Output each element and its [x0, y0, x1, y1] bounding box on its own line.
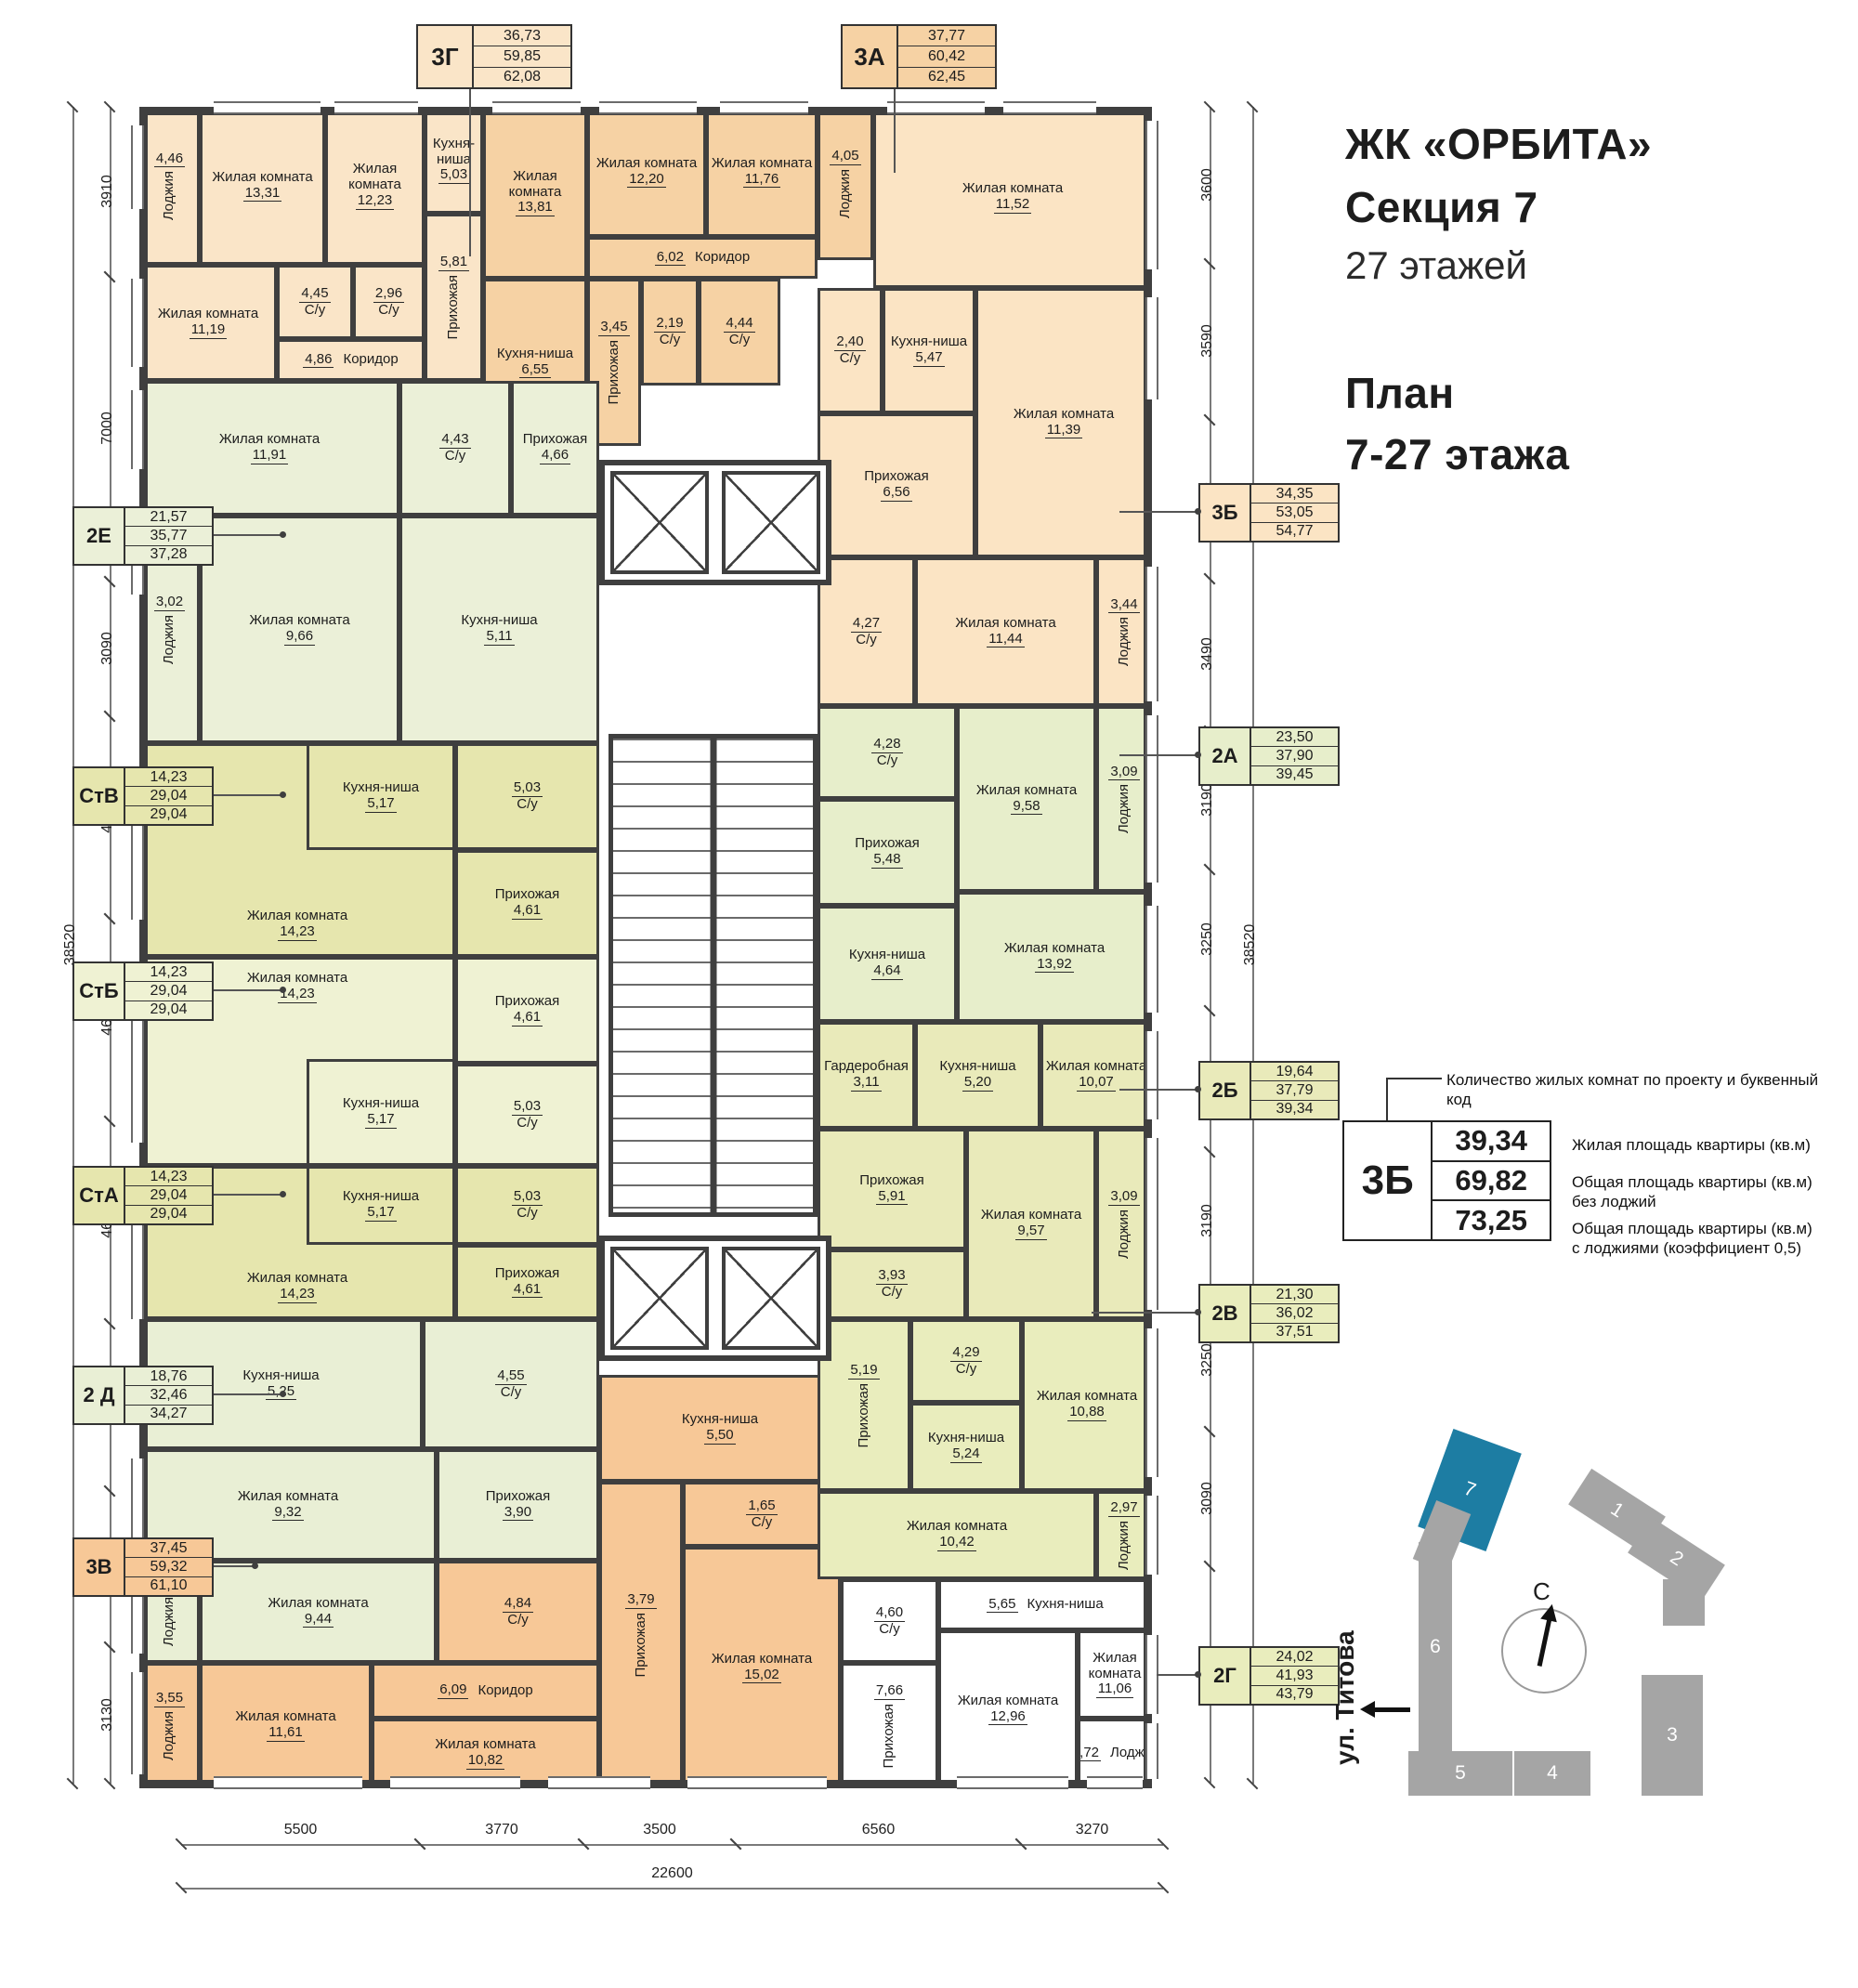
leader-dot [1195, 508, 1201, 515]
room-area: 3,09Лоджия [1096, 706, 1152, 892]
room-area: 11,19 [190, 322, 227, 339]
room-area: 4,05Лоджия [818, 107, 873, 260]
room-area: Кухня-ниша5,17 [307, 1059, 455, 1166]
window-segment [214, 1776, 362, 1789]
room-area: Жилая комната9,66 [200, 516, 399, 743]
apartment-box-СтБ: СтБ14,2329,0429,04 [72, 961, 214, 1021]
apartment-code: 2 Д [74, 1367, 125, 1423]
leader-line [1157, 1674, 1198, 1676]
apartment-area-value: 29,04 [125, 787, 212, 805]
room-area: 1,65 [746, 1498, 777, 1515]
room-name: С/у [507, 1613, 529, 1628]
room-area: 3,72 [1078, 1746, 1101, 1762]
room-area: 10,82 [466, 1753, 505, 1770]
window-segment [720, 101, 808, 114]
window-segment [687, 1776, 827, 1789]
room-area: Прихожая4,61 [455, 850, 599, 957]
room-name: Жилая комната [435, 1737, 535, 1753]
apartment-area-value: 37,79 [1251, 1081, 1338, 1100]
room-area: 14,23 [278, 924, 317, 941]
apartment-area-value: 59,32 [125, 1558, 212, 1576]
room-area: 6,09 [438, 1682, 468, 1699]
dim-label: 3190 [1199, 1174, 1216, 1267]
legend-living-area: 39,34 [1433, 1122, 1550, 1162]
apartment-box-2Б: 2Б19,6437,7939,34 [1198, 1061, 1340, 1120]
apartment-area-value: 62,45 [898, 68, 995, 87]
room-bathroom: 5,03С/у [455, 1166, 599, 1245]
site-building-3: 3 [1642, 1675, 1703, 1796]
room-bathroom: 4,60С/у [841, 1579, 938, 1663]
apartment-area-value: 37,90 [1251, 747, 1338, 765]
room-area: 4,86 [303, 352, 334, 369]
room-name: Жилая комната [212, 170, 312, 186]
room-name: Кухня-ниша [682, 1412, 758, 1428]
leader-line [1092, 1312, 1198, 1314]
plan-floors: 7-27 этажа [1345, 429, 1828, 479]
room-area: Кухня-ниша5,50 [599, 1375, 841, 1482]
room-area: 11,76 [743, 172, 780, 189]
room-name: Прихожая [495, 887, 560, 903]
leader-dot [280, 987, 286, 993]
room-area: 4,61 [512, 903, 543, 920]
window-segment [1145, 1328, 1158, 1477]
apartment-box-2В: 2В21,3036,0237,51 [1198, 1284, 1340, 1343]
room-bathroom: 4,84С/у [437, 1561, 599, 1663]
room-area: 4,46Лоджия [139, 107, 200, 265]
room-area: 5,03 [512, 1189, 543, 1206]
room-name: Жилая комната [219, 432, 320, 448]
room-name: Прихожая [495, 1266, 560, 1282]
room-area: 5,65Кухня-ниша [938, 1579, 1152, 1630]
window-segment [492, 101, 581, 114]
room-area: Кухня-ниша5,47 [883, 288, 975, 413]
room-area: 5,20 [962, 1075, 993, 1092]
room-area: 5,47 [913, 350, 944, 367]
room-area: Жилая комната11,61 [200, 1663, 372, 1788]
room-area: 4,66 [540, 448, 570, 464]
apartment-area-value: 19,64 [1251, 1063, 1338, 1081]
window-segment [1145, 715, 1158, 883]
apartment-code: СтБ [74, 963, 125, 1019]
window-segment [1087, 1776, 1143, 1789]
room-area: 5,03 [512, 780, 543, 797]
leader-line [214, 794, 283, 796]
room-area: Кухня-ниша5,17 [307, 1166, 455, 1245]
room-name: Лоджия [1117, 617, 1132, 666]
room-area: 4,05 [830, 149, 860, 165]
room-bathroom: 2,19С/у [641, 279, 699, 386]
window-segment [548, 1776, 650, 1789]
elevator-shaft-icon [722, 1247, 820, 1350]
room-area: 2,97 [1108, 1500, 1139, 1517]
window-segment [1145, 1496, 1158, 1575]
room-area: 5,19 [848, 1363, 879, 1380]
room-name: Кухня-ниша [461, 613, 537, 629]
room-area: Жилая комната12,96 [938, 1630, 1078, 1788]
room-area: Гардеробная3,11 [818, 1022, 915, 1129]
room-area: 5,91 [876, 1189, 907, 1206]
elevator-shaft-icon [722, 471, 820, 574]
room-area: 10,42 [937, 1535, 976, 1551]
room-area: Жилая комната9,44 [200, 1561, 437, 1663]
room-area: 4,45 [299, 286, 330, 303]
room-name: С/у [752, 1515, 773, 1531]
room-name: Коридор [343, 352, 398, 368]
room-area: 11,44 [987, 632, 1024, 648]
room-area: 6,56 [881, 485, 911, 502]
apartment-area-value: 35,77 [125, 527, 212, 545]
apartment-code: 3А [843, 26, 898, 87]
window-segment [599, 101, 697, 114]
room-area: 6,09Коридор [372, 1663, 599, 1719]
dim-line [736, 1844, 1021, 1846]
room-bathroom: 4,28С/у [818, 706, 957, 799]
room-area: 9,57 [1015, 1223, 1046, 1240]
room-name: Лоджия [162, 615, 177, 664]
dim-label: 6560 [842, 1822, 916, 1838]
room-area: Прихожая4,61 [455, 957, 599, 1064]
elevator-bank-top [599, 460, 831, 585]
dim-label: 3590 [1199, 294, 1216, 387]
room-name: Кухня-ниша [497, 347, 573, 362]
room-area: Кухня-ниша5,24 [910, 1403, 1022, 1491]
room-name: Лоджия [838, 169, 854, 218]
room-area: 2,19 [654, 316, 685, 333]
apartment-area-value: 37,45 [125, 1539, 212, 1558]
room-area: 12,96 [988, 1709, 1027, 1726]
room-name: С/у [517, 1116, 538, 1131]
leader-line [469, 89, 471, 256]
room-name: Прихожая [495, 994, 560, 1010]
floors-count: 27 этажей [1345, 243, 1828, 288]
room-name: С/у [660, 333, 681, 348]
room-name: Коридор [478, 1683, 532, 1699]
room-area: 11,52 [994, 197, 1031, 214]
dim-line [1021, 1844, 1163, 1846]
apartment-area-value: 29,04 [125, 1001, 212, 1019]
room-area: 5,11 [484, 629, 514, 646]
room-name: Жилая комната [158, 307, 258, 322]
room-bathroom: 5,03С/у [455, 1064, 599, 1166]
legend-total-area: 69,82 [1433, 1162, 1550, 1202]
room-area: 3,79 [625, 1592, 656, 1609]
apartment-area-value: 41,93 [1251, 1667, 1338, 1685]
room-name: Кухня-ниша [343, 780, 419, 796]
apartment-area-value: 14,23 [125, 768, 212, 787]
window-segment [334, 101, 418, 114]
apartment-box-2А: 2А23,5037,9039,45 [1198, 726, 1340, 786]
room-area: Жилая комната11,19 [139, 265, 277, 381]
dim-label: 3490 [1199, 608, 1216, 700]
room-name: Жилая комната [712, 1652, 812, 1668]
room-area: 5,17 [365, 796, 396, 813]
north-label: С [1533, 1577, 1551, 1606]
window-segment [214, 101, 321, 114]
room-area: 4,28 [871, 737, 902, 753]
room-area: Жилая комната12,20 [587, 107, 706, 237]
room-bathroom: 5,03С/у [455, 743, 599, 850]
room-area: 3,09 [1108, 1189, 1139, 1206]
room-area: 3,55Лоджия [139, 1663, 200, 1788]
room-name: Прихожая [882, 1704, 897, 1769]
apartment-area-value: 14,23 [125, 1168, 212, 1186]
apartment-box-2Г: 2Г24,0241,9343,79 [1198, 1646, 1340, 1706]
room-area: 4,43 [439, 432, 470, 449]
room-area: 4,61 [512, 1010, 543, 1027]
site-building-6: 6 [1419, 1542, 1452, 1751]
apartment-area-value: 21,30 [1251, 1286, 1338, 1304]
room-bathroom: 3,93С/у [818, 1249, 966, 1319]
window-segment [131, 1458, 144, 1542]
room-name: Прихожая [864, 469, 929, 485]
room-area: Прихожая3,90 [437, 1449, 599, 1561]
room-area: Жилая комната11,91 [139, 381, 399, 516]
room-area: Жилая комната10,88 [1022, 1319, 1152, 1491]
room-area: Жилая комната13,31 [200, 107, 325, 265]
site-building-4: 4 [1514, 1751, 1590, 1796]
legend-label-1: Жилая площадь квартиры (кв.м) [1572, 1135, 1851, 1155]
leader-line [214, 1565, 255, 1567]
room-name: Прихожая [855, 836, 920, 852]
room-bathroom: 4,29С/у [910, 1319, 1022, 1403]
legend-code: 3Б [1344, 1122, 1433, 1239]
window-segment [957, 1776, 1068, 1789]
window-segment [1145, 906, 1158, 1013]
leader-dot [1195, 1671, 1201, 1678]
room-name: Лоджия [162, 171, 177, 220]
room-name: Жилая комната [247, 1271, 347, 1287]
room-area: 4,46 [154, 151, 185, 168]
apartment-area-value: 36,02 [1251, 1304, 1338, 1323]
room-name: Гардеробная [824, 1059, 909, 1075]
room-area: 5,03 [512, 1099, 543, 1116]
room-area: 4,64 [871, 963, 902, 980]
room-name: Жилая комната [907, 1519, 1007, 1535]
room-name: С/у [378, 303, 399, 319]
room-name: Жилая комната [1014, 407, 1114, 423]
room-name: Кухня-ниша [1027, 1597, 1104, 1613]
room-area: 3,79Прихожая [599, 1482, 683, 1788]
window-segment [1145, 1723, 1158, 1779]
room-area: 3,44Лоджия [1096, 557, 1152, 706]
room-name: Кухня-ниша [242, 1368, 319, 1384]
room-name: С/у [956, 1362, 977, 1378]
room-area: 11,06 [1096, 1681, 1133, 1698]
room-name: Лоджия [1117, 1521, 1132, 1570]
dim-line [181, 1844, 420, 1846]
leader-dot [1195, 752, 1201, 758]
room-area: 3,45 [598, 320, 629, 336]
room-area: Жилая комната13,81 [483, 107, 587, 279]
room-area: 4,84 [503, 1596, 533, 1613]
dim-label: 3250 [1199, 893, 1216, 986]
room-name: Кухня-ниша [849, 948, 925, 963]
dim-label: 7000 [99, 382, 116, 475]
room-area: Прихожая5,91 [818, 1129, 966, 1249]
room-area: 2,96 [373, 286, 404, 303]
room-area: Жилая комната12,23 [325, 107, 425, 265]
window-segment [1145, 297, 1158, 399]
room-name: С/у [879, 1622, 900, 1638]
room-area: 12,23 [356, 193, 395, 210]
room-name: С/у [882, 1285, 903, 1301]
window-segment [1145, 567, 1158, 701]
apartment-area-value: 34,35 [1251, 485, 1338, 504]
window-segment [131, 279, 144, 367]
room-area: Жилая комната15,02 [683, 1547, 841, 1788]
room-name: Жилая комната [1037, 1389, 1137, 1405]
apartment-code: СтВ [74, 768, 125, 824]
room-name: Коридор [695, 250, 750, 266]
elevator-shaft-icon [610, 1247, 709, 1350]
room-area: 5,81 [438, 255, 469, 271]
apartment-area-value: 37,51 [1251, 1324, 1338, 1341]
dim-line [583, 1844, 736, 1846]
room-name: Жилая комната [976, 783, 1077, 799]
room-area: 11,91 [251, 448, 288, 464]
apartment-code: 3Г [418, 26, 474, 87]
room-name: Жилая комната [1004, 941, 1105, 957]
apartment-code: 2Г [1200, 1648, 1251, 1704]
room-area: 13,81 [516, 200, 555, 216]
leader-dot [280, 1391, 286, 1397]
room-area: Жилая комната9,57 [966, 1129, 1096, 1319]
room-name: Кухня-ниша [427, 137, 480, 168]
room-name: Жилая комната [955, 616, 1055, 632]
room-area: 5,19Прихожая [818, 1319, 910, 1491]
room-area: 5,24 [950, 1446, 981, 1463]
apartment-area-value: 39,34 [1251, 1101, 1338, 1118]
room-name: Жилая комната [247, 909, 347, 924]
leader-line [214, 1393, 283, 1395]
leader-dot [280, 1191, 286, 1197]
leader-line [214, 989, 283, 991]
leader-dot [280, 791, 286, 798]
room-area: 15,02 [742, 1668, 781, 1684]
dim-label: 3770 [464, 1822, 539, 1838]
room-area: 9,58 [1011, 799, 1041, 816]
window-segment [390, 1776, 520, 1789]
room-name: С/у [729, 333, 751, 348]
room-name: С/у [840, 351, 861, 367]
room-area: Жилая комната11,39 [975, 288, 1152, 557]
room-area: 3,09Лоджия [1096, 1129, 1152, 1319]
room-name: Жилая комната [958, 1694, 1058, 1709]
window-segment [1145, 1031, 1158, 1119]
legend-total-area-loggia: 73,25 [1433, 1201, 1550, 1239]
room-name: Прихожая [486, 1489, 551, 1505]
apartment-area-value: 60,42 [898, 46, 995, 67]
dim-label: 38520 [1242, 898, 1259, 991]
room-area: 3,11 [851, 1075, 881, 1092]
apartment-box-3В: 3В37,4559,3261,10 [72, 1537, 214, 1597]
room-name: Прихожая [607, 340, 622, 405]
leader-dot [280, 531, 286, 538]
room-name: Кухня-ниша [891, 334, 967, 350]
apartment-area-value: 34,27 [125, 1406, 212, 1423]
room-area: Кухня-ниша5,11 [399, 516, 599, 743]
dim-label: 3090 [99, 602, 116, 695]
apartment-area-value: 53,05 [1251, 504, 1338, 522]
room-name: С/у [445, 449, 466, 464]
room-area: Жилая комната13,92 [957, 892, 1152, 1022]
window-segment [131, 1672, 144, 1774]
room-area: Прихожая4,66 [511, 381, 599, 516]
room-area: 6,02 [655, 250, 686, 267]
room-area: 4,44 [724, 316, 754, 333]
window-segment [887, 101, 985, 114]
apartment-area-value: 43,79 [1251, 1686, 1338, 1704]
room-name: Прихожая [523, 432, 588, 448]
room-area: Прихожая4,61 [455, 1245, 599, 1319]
dim-label: 3270 [1055, 1822, 1130, 1838]
room-area: 3,90 [503, 1505, 533, 1522]
apartment-code: 3В [74, 1539, 125, 1595]
room-name: Лоджия [1117, 784, 1132, 833]
room-name: Жилая комната [486, 169, 584, 201]
apartment-code: 2А [1200, 728, 1251, 784]
room-area: Жилая комната11,52 [873, 107, 1152, 288]
street-arrow-icon [1375, 1707, 1410, 1712]
room-name: С/у [305, 303, 326, 319]
room-area: 2,40 [834, 334, 865, 351]
room-area: 9,44 [303, 1612, 334, 1628]
room-area: Кухня-ниша4,64 [818, 906, 957, 1022]
room-area: 4,55 [495, 1368, 526, 1385]
apartment-area-value: 61,10 [125, 1577, 212, 1595]
apartment-code: 3Б [1200, 485, 1251, 541]
room-area: Кухня-ниша5,17 [307, 743, 455, 850]
dim-label: 22600 [635, 1865, 710, 1882]
room-area: Кухня-ниша5,03 [425, 107, 483, 214]
room-name: Прихожая [634, 1613, 649, 1678]
room-name: Лоджия [162, 1711, 177, 1760]
room-area: 11,39 [1045, 423, 1082, 439]
room-area: 7,66 [874, 1683, 905, 1700]
apartment-area-value: 29,04 [125, 982, 212, 1001]
room-area: 4,27 [851, 616, 882, 633]
room-area: 3,93 [876, 1268, 907, 1285]
apartment-box-СтВ: СтВ14,2329,0429,04 [72, 766, 214, 826]
floorplan-sheet: { "header":{"line1":"ЖК «ОРБИТА»","line2… [0, 0, 1858, 1988]
room-bathroom: 4,27С/у [818, 557, 915, 706]
room-bathroom: 2,40С/у [818, 288, 883, 413]
room-area: Жилая комната11,44 [915, 557, 1096, 706]
room-area: 4,86Коридор [277, 339, 425, 381]
room-area: 5,50 [704, 1428, 735, 1445]
room-name: Жилая комната [712, 156, 812, 172]
room-name: Кухня-ниша [928, 1431, 1004, 1446]
room-area: Прихожая5,48 [818, 799, 957, 906]
room-name: Жилая комната [1080, 1651, 1149, 1682]
apartment-area-value: 29,04 [125, 1206, 212, 1223]
room-area: Жилая комната10,07 [1040, 1022, 1152, 1129]
leader-line [1119, 1089, 1198, 1091]
room-area: 4,29 [950, 1345, 981, 1362]
dim-label: 3090 [1199, 1452, 1216, 1545]
room-name: Жилая комната [247, 971, 347, 987]
elevator-shaft-icon [610, 471, 709, 574]
apartment-area-value: 32,46 [125, 1386, 212, 1405]
room-name: Жилая комната [328, 162, 422, 193]
room-area: Жилая комната11,76 [706, 107, 818, 237]
room-name: Кухня-ниша [939, 1059, 1015, 1075]
legend-sample-box: 3Б 39,34 69,82 73,25 [1342, 1120, 1551, 1241]
room-area: 13,92 [1035, 957, 1074, 974]
room-name: Жилая комната [962, 181, 1063, 197]
room-area: 3,02 [154, 595, 185, 611]
dim-label: 3600 [1199, 138, 1216, 231]
